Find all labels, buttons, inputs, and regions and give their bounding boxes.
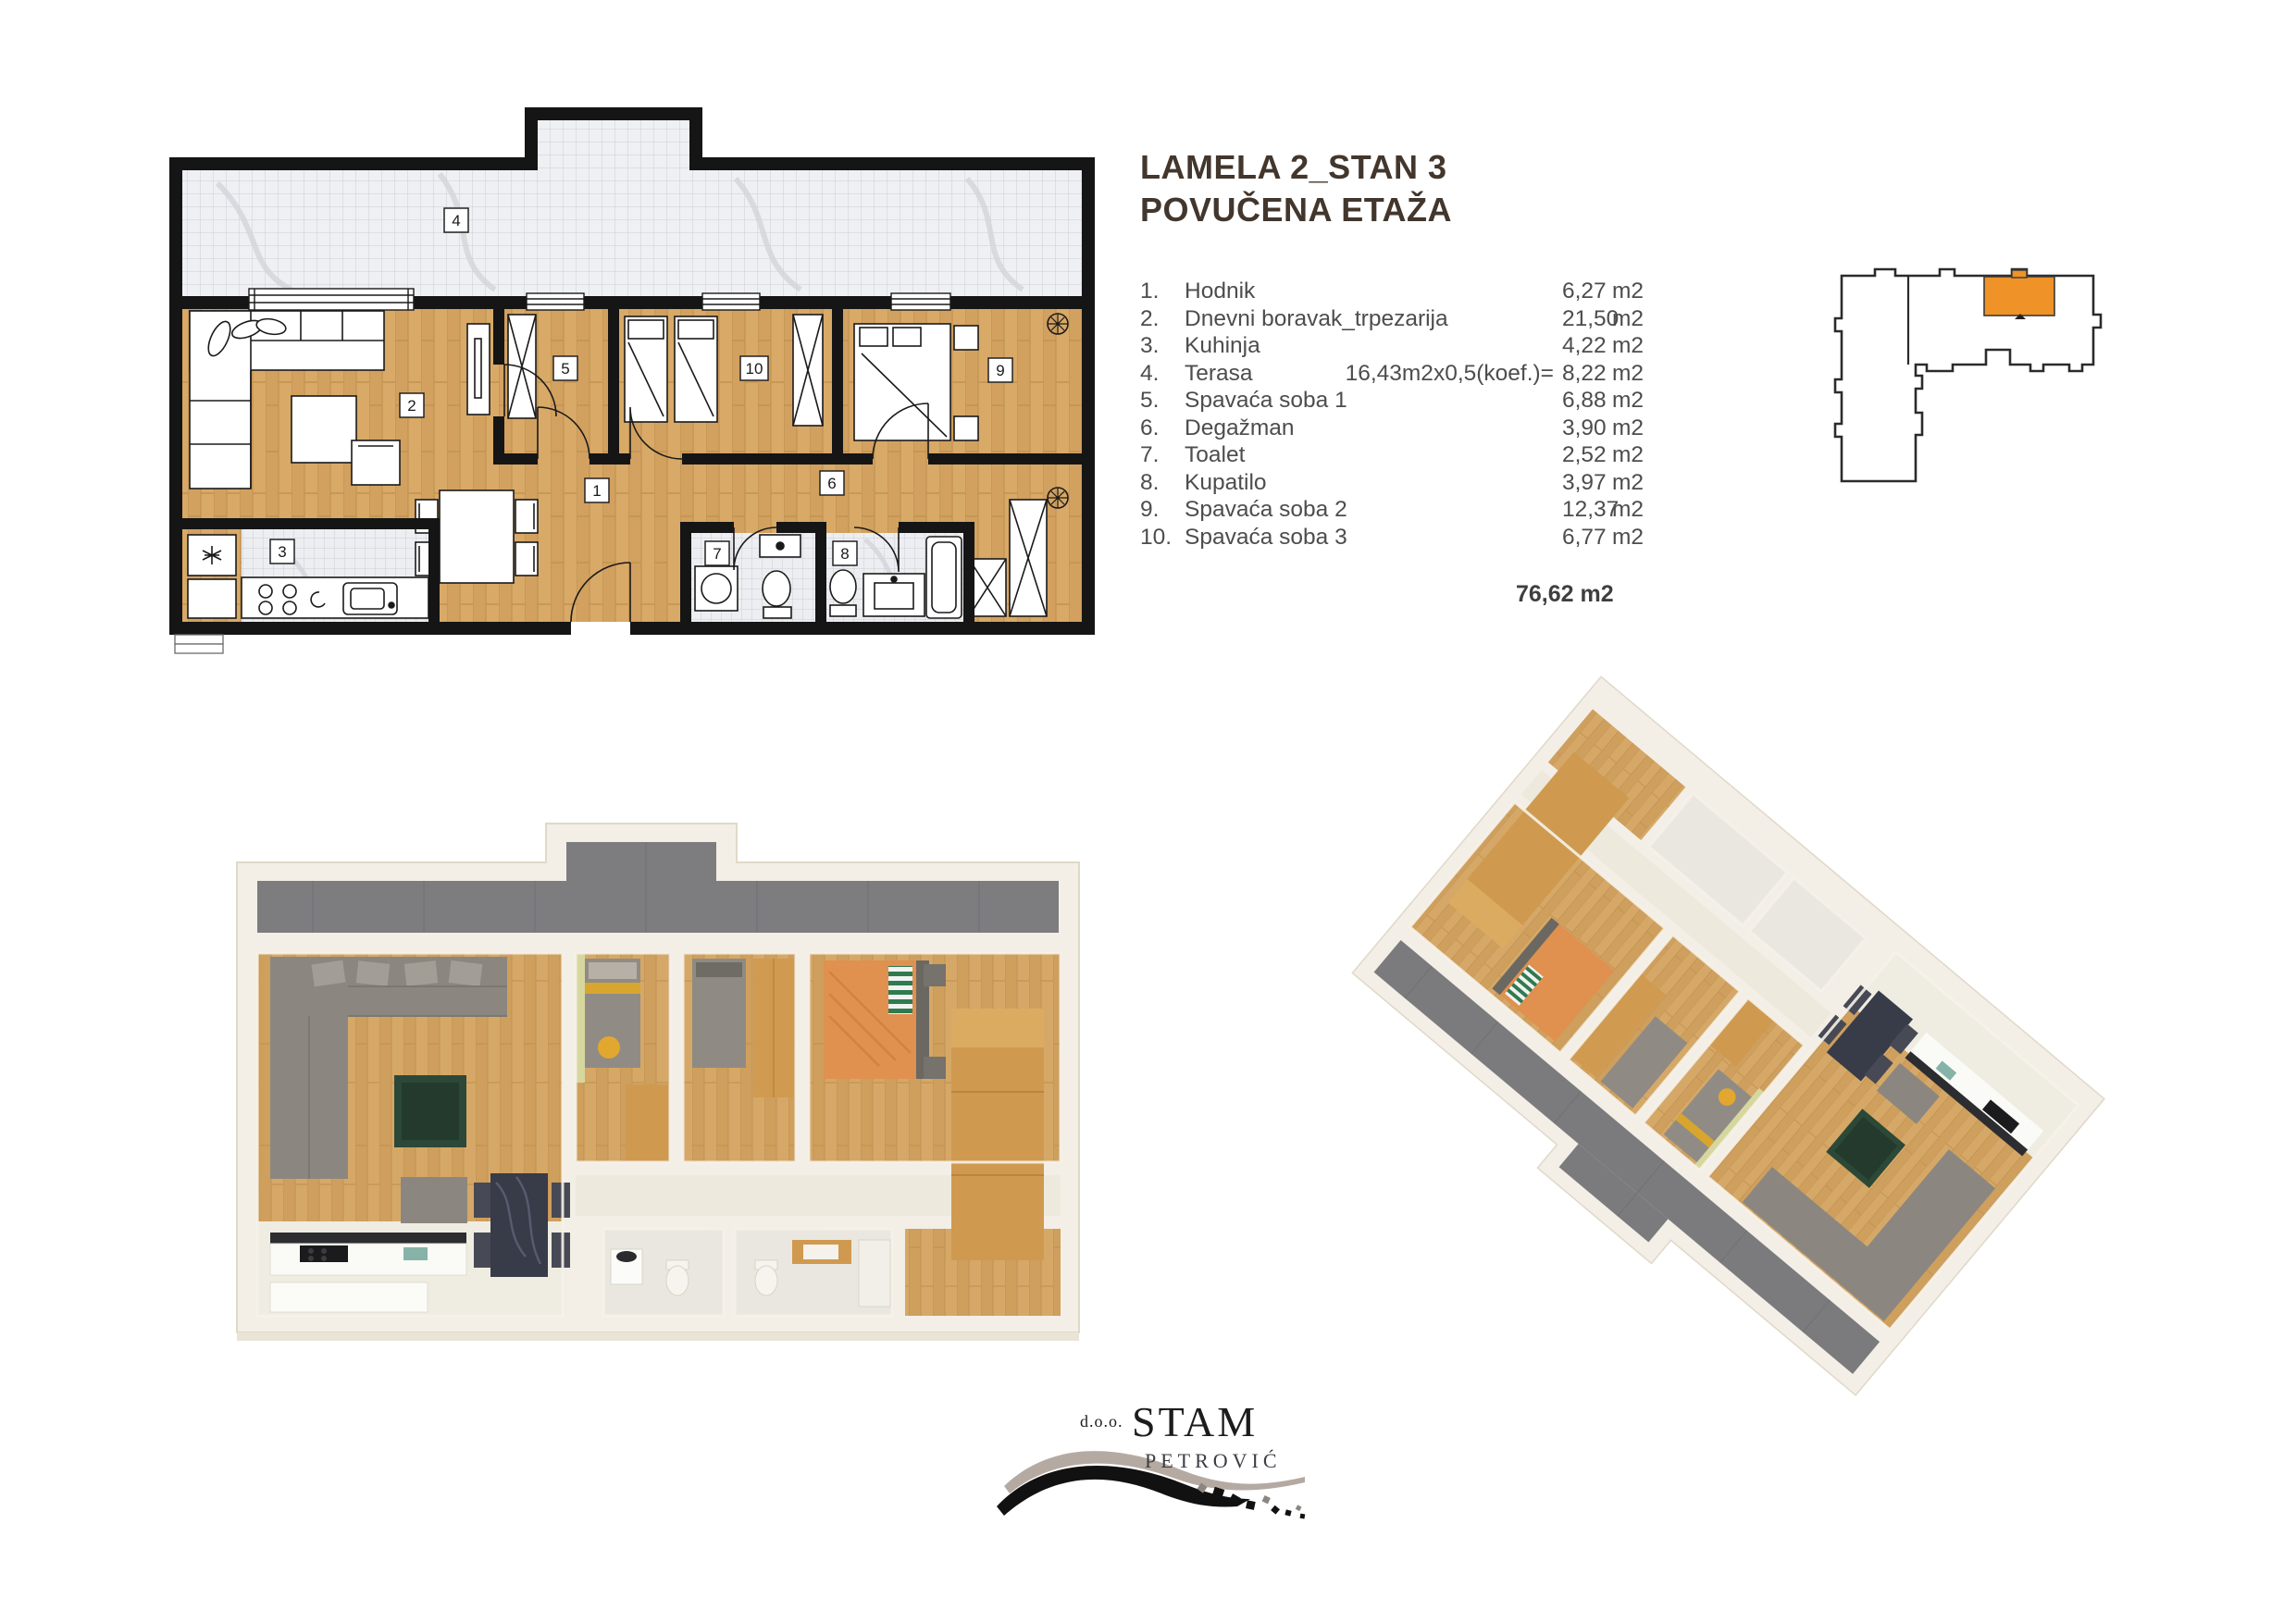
svg-text:7: 7 xyxy=(713,545,721,563)
room-name: Spavaća soba 1 xyxy=(1185,387,1554,415)
room-label: 1 xyxy=(585,478,609,502)
room-list-row: 9. Spavaća soba 2 12,37 m2 xyxy=(1140,496,1658,524)
room-number: 7. xyxy=(1140,441,1185,469)
svg-text:10: 10 xyxy=(746,360,763,378)
room-number: 4. xyxy=(1140,360,1185,388)
room-area-unit: m2 xyxy=(1612,496,1658,524)
room-name: Dnevni boravak_trpezarija xyxy=(1185,305,1554,333)
room-list-row: 4. Terasa 16,43m2x0,5(koef.)= 8,22 m2 xyxy=(1140,360,1658,388)
room-note xyxy=(1554,387,1562,415)
building-outline xyxy=(1835,269,2101,481)
total-area-value: 76,62 m2 xyxy=(1516,581,1614,607)
room-number: 9. xyxy=(1140,496,1185,524)
room-number: 5. xyxy=(1140,387,1185,415)
room-area-value: 6,88 xyxy=(1562,387,1612,415)
room-area-unit: m2 xyxy=(1612,415,1658,442)
svg-text:9: 9 xyxy=(996,362,1004,379)
render-angled xyxy=(1291,643,2147,1453)
room-note xyxy=(1554,332,1562,360)
unit-highlight xyxy=(1984,277,2054,316)
svg-text:1: 1 xyxy=(592,482,601,500)
entrance-steps xyxy=(175,635,223,653)
room-list-row: 8. Kupatilo 3,97 m2 xyxy=(1140,469,1658,497)
room-note xyxy=(1554,524,1562,551)
terrace-floor xyxy=(182,120,1082,296)
room-number: 6. xyxy=(1140,415,1185,442)
room-note xyxy=(1554,496,1562,524)
room-label: 7 xyxy=(705,541,729,565)
room-area-value: 4,22 xyxy=(1562,332,1612,360)
svg-text:8: 8 xyxy=(840,545,849,563)
render-top-down xyxy=(211,814,1107,1406)
company-logo: d.o.o. STAM PETROVIĆ xyxy=(995,1377,1309,1539)
room-area-value: 21,50 xyxy=(1562,305,1612,333)
room-area-value: 3,90 xyxy=(1562,415,1612,442)
floorplan-2d: 1 2 3 4 5 6 7 8 9 10 xyxy=(162,91,1101,664)
room-list-row: 6. Degažman 3,90 m2 xyxy=(1140,415,1658,442)
room-list-row: 1. Hodnik 6,27 m2 xyxy=(1140,278,1658,305)
room-name: Kuhinja xyxy=(1185,332,1554,360)
room-area-value: 6,27 xyxy=(1562,278,1612,305)
room-name: Toalet xyxy=(1185,441,1554,469)
room-area-unit: m2 xyxy=(1612,278,1658,305)
room-area-unit: m2 xyxy=(1612,360,1658,388)
title-line-2: POVUČENA ETAŽA xyxy=(1140,189,1788,231)
title-line-1: LAMELA 2_STAN 3 xyxy=(1140,146,1788,189)
room-label: 10 xyxy=(740,356,768,380)
room-note xyxy=(1554,441,1562,469)
room-area-unit: m2 xyxy=(1612,441,1658,469)
room-area-value: 6,77 xyxy=(1562,524,1612,551)
logo-prefix: d.o.o. xyxy=(1080,1412,1123,1431)
brochure-page: 1 2 3 4 5 6 7 8 9 10 LAMELA 2_STAN 3 POV… xyxy=(0,0,2296,1623)
room-label: 8 xyxy=(833,541,857,565)
room-number: 10. xyxy=(1140,524,1185,551)
room-note xyxy=(1554,469,1562,497)
room-list-row: 3. Kuhinja 4,22 m2 xyxy=(1140,332,1658,360)
room-name: Degažman xyxy=(1185,415,1554,442)
svg-text:6: 6 xyxy=(827,475,836,492)
room-note xyxy=(1554,305,1562,333)
room-area-value: 8,22 xyxy=(1562,360,1612,388)
room-area-unit: m2 xyxy=(1612,524,1658,551)
room-list-row: 5. Spavaća soba 1 6,88 m2 xyxy=(1140,387,1658,415)
room-number: 3. xyxy=(1140,332,1185,360)
svg-text:2: 2 xyxy=(407,397,416,415)
render-bottom-shadow xyxy=(237,1332,1079,1341)
room-list-row: 10. Spavaća soba 3 6,77 m2 xyxy=(1140,524,1658,551)
room-note xyxy=(1554,415,1562,442)
svg-text:5: 5 xyxy=(561,360,569,378)
room-label: 4 xyxy=(444,208,468,232)
room-list-row: 7. Toalet 2,52 m2 xyxy=(1140,441,1658,469)
logo-name: STAM xyxy=(1132,1398,1258,1445)
room-name: Hodnik xyxy=(1185,278,1554,305)
room-note xyxy=(1554,278,1562,305)
room-area-value: 2,52 xyxy=(1562,441,1612,469)
unit-highlight-notch xyxy=(2012,270,2027,278)
room-label: 3 xyxy=(270,539,294,564)
room-label: 9 xyxy=(988,358,1012,382)
room-number: 1. xyxy=(1140,278,1185,305)
room-area-unit: m2 xyxy=(1612,469,1658,497)
render-terrace xyxy=(257,842,1059,933)
svg-text:3: 3 xyxy=(278,543,286,561)
room-area-unit: m2 xyxy=(1612,305,1658,333)
room-area-unit: m2 xyxy=(1612,387,1658,415)
room-area-value: 3,97 xyxy=(1562,469,1612,497)
room-label: 5 xyxy=(553,356,577,380)
room-number: 2. xyxy=(1140,305,1185,333)
room-label: 2 xyxy=(400,393,424,417)
room-number: 8. xyxy=(1140,469,1185,497)
room-name: Spavaća soba 2 xyxy=(1185,496,1554,524)
room-area-value: 12,37 xyxy=(1562,496,1612,524)
room-note: 16,43m2x0,5(koef.)= xyxy=(1346,360,1562,388)
room-name: Spavaća soba 3 xyxy=(1185,524,1554,551)
svg-text:4: 4 xyxy=(452,212,460,229)
room-area-list: 1. Hodnik 6,27 m2 2. Dnevni boravak_trpe… xyxy=(1140,278,1658,551)
room-name: Kupatilo xyxy=(1185,469,1554,497)
building-location-diagram xyxy=(1810,254,2132,502)
room-list-row: 2. Dnevni boravak_trpezarija 21,50 m2 xyxy=(1140,305,1658,333)
room-area-unit: m2 xyxy=(1612,332,1658,360)
logo-subname: PETROVIĆ xyxy=(1145,1449,1282,1472)
total-area-row: 76,62 m2 xyxy=(1140,581,1658,608)
room-label: 6 xyxy=(820,471,844,495)
page-title: LAMELA 2_STAN 3 POVUČENA ETAŽA xyxy=(1140,146,1788,231)
room-name: Terasa xyxy=(1185,360,1346,388)
